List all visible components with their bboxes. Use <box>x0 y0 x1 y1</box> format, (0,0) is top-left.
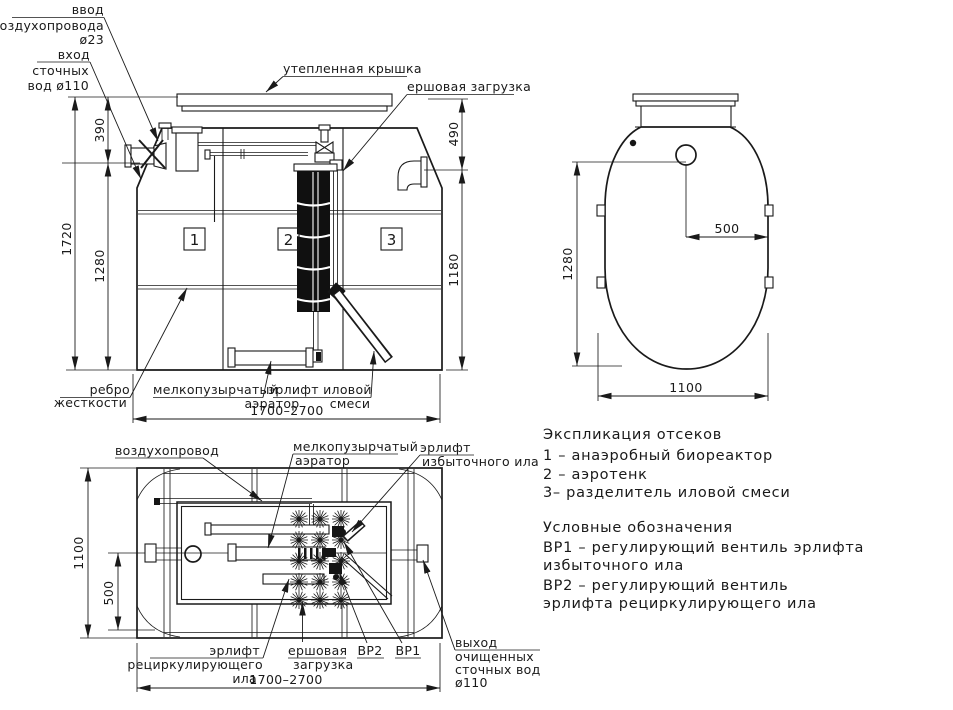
label-sewage-inlet-line1: вход <box>58 47 90 62</box>
legend: Экспликация отсеков 1 – анаэробный биоре… <box>543 427 864 612</box>
legend-vr2-line2: эрлифта рециркулирующего ила <box>543 596 817 612</box>
dim-side-1100: 1100 <box>669 380 702 395</box>
front-brush-media <box>294 164 337 362</box>
side-view: 500 1280 1100 <box>560 94 773 401</box>
legend-item-2: 2 – аэротенк <box>543 467 648 483</box>
front-insulated-lid <box>177 94 392 111</box>
compartment-1-number: 1 <box>190 231 200 249</box>
dim-outlet-depth: 490 <box>446 121 461 146</box>
plan-outlet-stub <box>391 545 428 562</box>
side-vent-dot <box>630 140 636 146</box>
dim-plan-500: 500 <box>101 580 116 605</box>
legend-vr1-line1: ВР1 – регулирующий вентиль эрлифта <box>543 540 864 556</box>
front-labels: ввод воздухопровода ø23 вход сточных вод… <box>0 2 531 411</box>
side-tab <box>765 205 773 216</box>
legend-symbols-title: Условные обозначения <box>543 520 733 536</box>
compartment-3-number: 3 <box>387 231 397 249</box>
label-sewage-inlet-line3: вод ø110 <box>27 78 89 93</box>
front-compartment-numbers: 1 2 3 <box>184 228 402 250</box>
label-front-airlift-line1: эрлифт иловой <box>268 382 372 397</box>
label-air-inlet-line2: воздухопровода <box>0 18 104 33</box>
label-vr1: ВР1 <box>396 643 421 658</box>
legend-title: Экспликация отсеков <box>543 427 722 443</box>
label-plan-brush-line2: загрузка <box>293 657 353 672</box>
legend-item-1: 1 – анаэробный биореактор <box>543 448 773 464</box>
front-view: 1 2 3 1720 390 1280 490 1180 1700–2700 <box>0 2 531 423</box>
front-outlet-elbow <box>398 157 427 190</box>
side-tab <box>597 277 605 288</box>
compartment-2-number: 2 <box>284 231 294 249</box>
label-excess-airlift-line1: эрлифт <box>420 440 471 455</box>
label-recirc-airlift-line2: рециркулирующего <box>127 657 263 672</box>
front-sludge-airlift <box>327 282 389 360</box>
label-insulated-lid: утепленная крышка <box>283 61 422 76</box>
label-air-duct: воздухопровод <box>115 443 219 458</box>
front-fine-bubble-aerator <box>228 348 321 367</box>
dim-total-height: 1720 <box>59 222 74 255</box>
dim-inlet-depth: 390 <box>92 117 107 142</box>
label-air-inlet-line3: ø23 <box>80 32 104 47</box>
legend-item-3: 3– разделитель иловой смеси <box>543 485 790 501</box>
septic-tank-drawing: 1 2 3 1720 390 1280 490 1180 1700–2700 <box>0 0 953 710</box>
dim-plan-1100: 1100 <box>71 536 86 569</box>
label-sewage-inlet-line2: сточных <box>32 63 89 78</box>
plan-brush-media-stars <box>290 510 350 609</box>
label-recirc-airlift-line1: эрлифт <box>209 643 260 658</box>
label-vr2: ВР2 <box>358 643 383 658</box>
label-excess-airlift-line2: избыточного ила <box>422 454 539 469</box>
side-tank-body <box>605 127 768 369</box>
technical-drawing-sheet: 1 2 3 1720 390 1280 490 1180 1700–2700 <box>0 0 953 710</box>
legend-vr2-line1: ВР2 – регулирующий вентиль <box>543 578 788 594</box>
air-valve <box>316 142 333 153</box>
dim-front-1180: 1180 <box>446 253 461 286</box>
side-tab <box>765 277 773 288</box>
label-front-airlift-line2: смеси <box>330 396 371 411</box>
label-plan-brush-line1: ершовая <box>288 643 347 658</box>
label-plan-aerator-line1: мелкопузырчатый <box>293 439 418 454</box>
label-plan-aerator-line2: аэратор <box>295 453 350 468</box>
label-air-inlet-line1: ввод <box>72 2 104 17</box>
valve-vr2 <box>329 563 342 574</box>
label-recirc-airlift-line3: ила <box>232 671 257 686</box>
label-outlet-line4: ø110 <box>455 675 488 690</box>
dim-side-500: 500 <box>714 221 739 236</box>
air-inlet-cap <box>159 123 171 128</box>
label-front-aerator-line1: мелкопузырчатый <box>153 382 278 397</box>
side-tab <box>597 205 605 216</box>
dim-plan-length: 1700–2700 <box>249 672 322 687</box>
label-outlet-line1: выход <box>455 635 497 650</box>
dim-front-1280: 1280 <box>92 249 107 282</box>
front-inlet-assembly <box>125 123 202 171</box>
plan-view: 1100 500 1700–2700 воздухопровод мелкопу… <box>71 439 541 692</box>
label-brush-media: ершовая загрузка <box>407 79 531 94</box>
label-front-aerator-line2: аэратор <box>244 396 299 411</box>
legend-vr1-line2: избыточного ила <box>543 558 684 574</box>
dim-side-1280: 1280 <box>560 247 575 280</box>
